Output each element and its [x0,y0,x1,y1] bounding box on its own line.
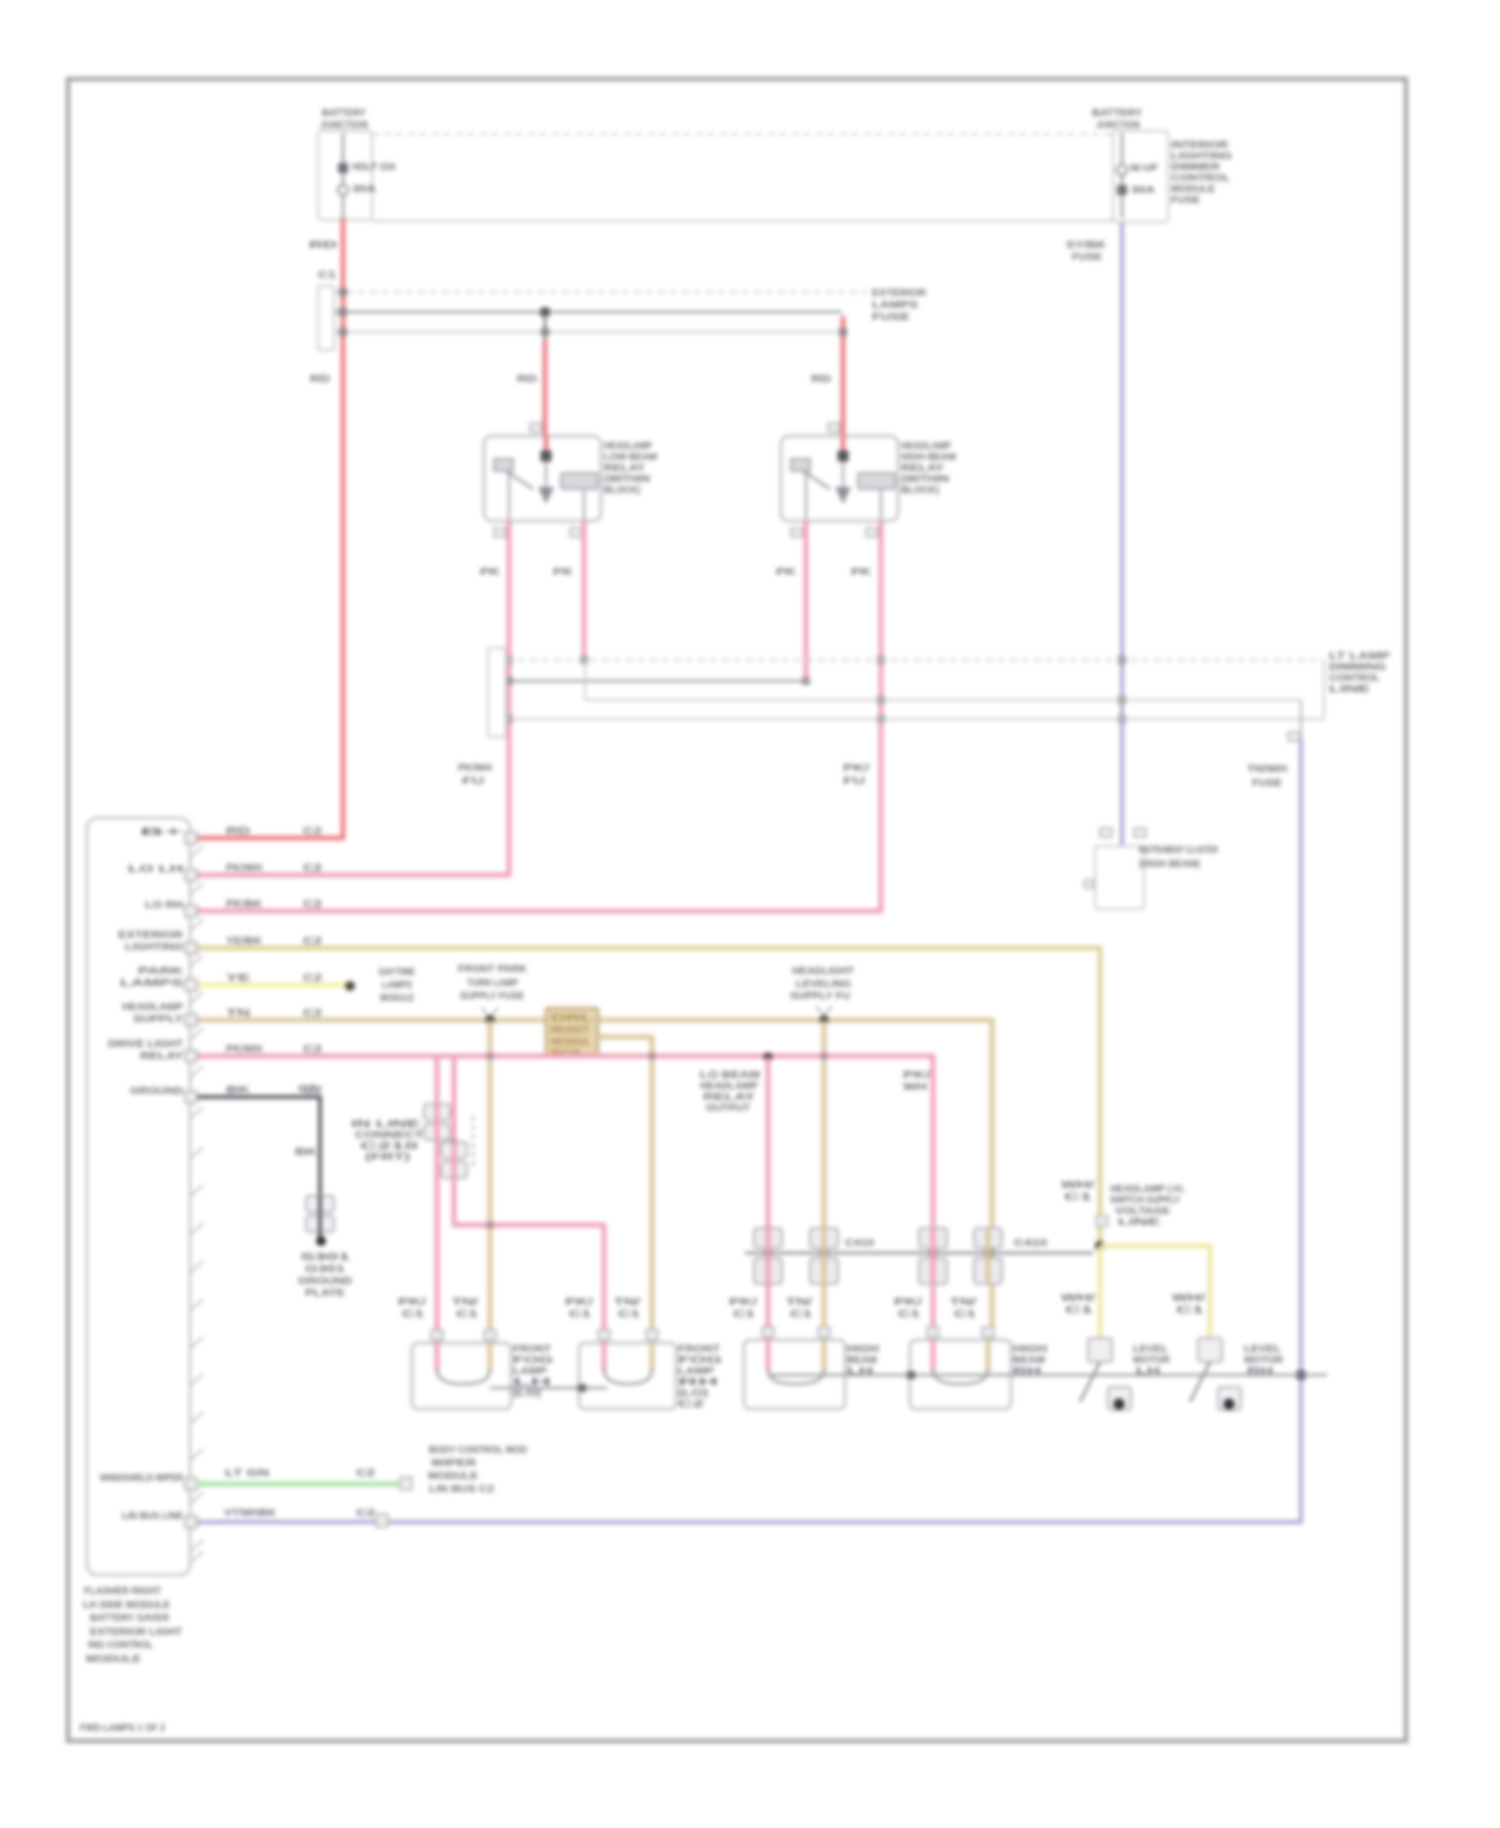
svg-text:HEADLAMP: HEADLAMP [604,441,652,452]
svg-text:BLOCK): BLOCK) [604,485,640,496]
svg-text:30A: 30A [352,184,376,195]
svg-text:BK: BK [295,1147,318,1158]
svg-text:G301: G301 [305,1264,346,1275]
svg-text:(FRT): (FRT) [365,1152,410,1163]
svg-text:C1: C1 [569,1309,592,1320]
svg-text:EXTERIOR LIGHT: EXTERIOR LIGHT [90,1627,182,1638]
svg-text:INSTRUMENT CLUSTER: INSTRUMENT CLUSTER [1139,845,1219,856]
svg-text:TN: TN [226,1008,250,1019]
svg-text:C1: C1 [733,1309,756,1320]
svg-text:PK: PK [851,567,872,578]
svg-text:W-UP: W-UP [1130,163,1158,174]
svg-text:HEADLAMP: HEADLAMP [122,1002,183,1013]
svg-text:C2: C2 [303,899,323,910]
svg-text:WH/: WH/ [1172,1293,1205,1304]
svg-text:LIGHTING: LIGHTING [125,942,183,953]
svg-text:RD: RD [517,374,537,385]
svg-text:MODUL: MODUL [551,1037,591,1048]
svg-text:JUNCTION: JUNCTION [320,120,368,131]
svg-text:EXTERIOR: EXTERIOR [118,930,184,941]
svg-text:RELAY: RELAY [140,1051,183,1062]
svg-text:C2: C2 [303,1044,323,1055]
svg-text:BODY CONTROL MOD: BODY CONTROL MOD [429,1445,527,1456]
svg-text:SUPPLY FU: SUPPLY FU [790,991,850,1002]
svg-text:C1: C1 [618,1309,641,1320]
svg-text:RELAY: RELAY [703,1092,756,1103]
svg-text:TN/: TN/ [786,1297,812,1308]
svg-text:C2: C2 [303,1085,323,1096]
svg-text:MODULE: MODULE [380,993,414,1004]
svg-text:INTERIOR: INTERIOR [1171,140,1229,151]
svg-text:SY/BK: SY/BK [1066,240,1107,251]
svg-text:C2: C2 [356,1468,376,1479]
svg-text:HIGH: HIGH [847,1344,879,1355]
svg-text:C410: C410 [845,1238,875,1249]
svg-text:(HIGH BEAM): (HIGH BEAM) [1139,859,1200,870]
svg-text:SUPPLY: SUPPLY [133,1014,183,1025]
svg-text:BEAM: BEAM [847,1355,877,1366]
svg-text:B+: B+ [140,827,184,838]
svg-text:LAMPS: LAMPS [872,300,918,311]
svg-text:FRONT PARK: FRONT PARK [458,964,528,975]
svg-text:CONNECT: CONNECT [355,1130,423,1141]
svg-text:FWD LAMPS 1 OF 2: FWD LAMPS 1 OF 2 [80,1723,165,1734]
svg-text:WH/: WH/ [1061,1293,1095,1304]
svg-text:PK/: PK/ [729,1297,757,1308]
svg-text:CONTROL: CONTROL [1329,673,1380,684]
svg-text:DIMMING: DIMMING [1329,662,1386,673]
svg-text:LEVEL: LEVEL [1244,1344,1281,1355]
svg-text:LH SIDE MODULE: LH SIDE MODULE [83,1600,170,1611]
svg-text:OUTPUT: OUTPUT [706,1103,750,1114]
svg-text:C1: C1 [790,1309,813,1320]
svg-text:PK/WH: PK/WH [458,763,492,774]
svg-text:C1: C1 [954,1309,977,1320]
svg-text:S301: S301 [300,1252,351,1263]
svg-text:PK/: PK/ [843,763,869,774]
svg-text:LH: LH [513,1377,551,1388]
svg-text:FU: FU [462,776,484,787]
svg-text:MODULE: MODULE [428,1471,478,1482]
svg-text:HEADLAMP: HEADLAMP [901,441,951,452]
svg-text:C1: C1 [1065,1305,1094,1316]
svg-text:C1: C1 [318,270,337,281]
svg-text:HDLP 15A: HDLP 15A [352,162,396,173]
svg-text:RESIST: RESIST [551,1025,589,1036]
svg-text:RH: RH [678,1377,718,1388]
svg-text:VOLTAGE: VOLTAGE [1115,1206,1170,1217]
svg-text:(WITHIN: (WITHIN [604,474,650,485]
svg-text:EXTERIOR: EXTERIOR [872,288,927,299]
svg-text:LIN BUS LINE: LIN BUS LINE [122,1511,183,1522]
svg-text:LAMPS: LAMPS [382,980,412,991]
svg-text:LAMP: LAMP [513,1366,547,1377]
svg-text:C2: C2 [303,973,323,984]
svg-text:TN/: TN/ [614,1297,640,1308]
svg-text:GROUND: GROUND [130,1086,183,1097]
svg-text:HIGH BEAM: HIGH BEAM [901,452,956,463]
svg-text:PK/WH: PK/WH [226,1044,262,1055]
svg-text:RD: RD [310,374,330,385]
svg-text:FOG: FOG [678,1355,722,1366]
svg-text:PK: PK [776,567,797,578]
svg-text:C2: C2 [303,826,323,837]
svg-text:C1: C1 [1064,1192,1093,1203]
svg-text:PK/: PK/ [398,1297,426,1308]
svg-text:RELAY: RELAY [604,463,645,474]
svg-text:RD: RD [226,826,250,837]
svg-text:BATTERY: BATTERY [322,108,366,119]
svg-text:PK/: PK/ [903,1070,930,1081]
svg-text:TN/WH: TN/WH [1247,764,1287,775]
svg-text:TURN LAMP: TURN LAMP [467,978,518,989]
svg-text:PK/: PK/ [894,1297,922,1308]
svg-text:FRONT: FRONT [513,1344,551,1355]
svg-text:PARK: PARK [138,966,184,977]
svg-text:SWITCH SUPPLY: SWITCH SUPPLY [1110,1195,1180,1206]
svg-text:PK: PK [480,567,501,578]
svg-text:FRONT: FRONT [678,1344,720,1355]
svg-text:DRIVE LIGHT: DRIVE LIGHT [108,1039,183,1050]
svg-text:LO BEAM: LO BEAM [700,1070,760,1081]
svg-text:YE: YE [226,973,251,984]
svg-text:MOTOR: MOTOR [1244,1355,1284,1366]
svg-text:WINDSHIELD WIPER: WINDSHIELD WIPER [100,1473,184,1484]
svg-text:MOTOR: MOTOR [1133,1355,1171,1366]
svg-text:LT GN: LT GN [225,1468,269,1479]
svg-text:WH/: WH/ [1061,1180,1094,1191]
svg-text:LIN BUS C2: LIN BUS C2 [429,1484,495,1495]
svg-text:FUSE: FUSE [1252,778,1282,789]
svg-text:C2: C2 [303,936,323,947]
svg-text:LOW BEAM: LOW BEAM [604,452,657,463]
svg-text:DAYTIME: DAYTIME [379,967,415,978]
svg-text:WH: WH [903,1082,927,1093]
svg-text:FUSE: FUSE [1171,195,1200,206]
svg-text:BEAM: BEAM [1013,1355,1045,1366]
svg-text:LINE: LINE [1329,684,1371,695]
svg-text:HEADLIGHT: HEADLIGHT [792,966,854,977]
svg-text:WIPER: WIPER [431,1458,477,1469]
svg-text:C2: C2 [356,1508,376,1519]
svg-text:(LO): (LO) [513,1388,541,1399]
svg-text:LAMPS: LAMPS [120,978,184,989]
svg-text:VT/WHBK: VT/WHBK [224,1508,277,1519]
svg-text:C1: C1 [402,1309,425,1320]
svg-text:DIMMER: DIMMER [1171,162,1221,173]
svg-text:BLOCK): BLOCK) [901,485,939,496]
svg-text:BATTERY: BATTERY [1092,108,1142,119]
svg-text:(WITHIN: (WITHIN [901,474,949,485]
svg-text:C410: C410 [1014,1238,1048,1249]
svg-text:LO RH: LO RH [145,900,183,911]
svg-text:SUPPLY FUSE: SUPPLY FUSE [460,991,524,1002]
svg-text:C2: C2 [303,1008,323,1019]
svg-text:(LO): (LO) [678,1388,708,1399]
svg-text:ING CONTROL: ING CONTROL [88,1640,153,1651]
svg-text:RH: RH [1247,1366,1273,1377]
svg-text:YE/BK: YE/BK [226,936,263,947]
svg-text:PK/BK: PK/BK [226,899,263,910]
svg-text:PK: PK [553,567,574,578]
svg-text:HEADLAMP LVL: HEADLAMP LVL [1110,1184,1185,1195]
svg-text:MODULE: MODULE [86,1654,141,1665]
svg-text:FLASHER RIGHT: FLASHER RIGHT [84,1586,161,1597]
svg-text:PK/WH: PK/WH [226,863,262,874]
svg-text:LINE: LINE [1118,1217,1161,1228]
svg-text:C1: C1 [1176,1305,1205,1316]
svg-text:LEVELING: LEVELING [796,979,851,990]
svg-text:LAMP: LAMP [678,1366,714,1377]
svg-text:LIGHTING: LIGHTING [1171,151,1232,162]
svg-text:RELAY: RELAY [901,463,944,474]
svg-text:LT LAMP: LT LAMP [1329,651,1390,662]
svg-text:C2: C2 [303,863,323,874]
svg-text:C1: C1 [456,1309,479,1320]
svg-text:FU: FU [843,776,865,787]
svg-text:IN LINE: IN LINE [351,1119,421,1130]
svg-text:LEVEL: LEVEL [1133,1344,1168,1355]
svg-text:JUNCTION: JUNCTION [1096,120,1140,131]
svg-text:MODULE: MODULE [1171,184,1215,195]
svg-text:BATTERY SAVER: BATTERY SAVER [90,1613,170,1624]
svg-text:GROUND: GROUND [298,1276,352,1287]
svg-text:BK: BK [226,1085,251,1096]
svg-text:C1: C1 [898,1309,921,1320]
svg-text:PK/: PK/ [565,1297,593,1308]
svg-text:FUSE: FUSE [872,312,910,323]
svg-text:HEADLAMP: HEADLAMP [700,1081,758,1092]
svg-text:LH: LH [1136,1366,1160,1377]
svg-text:CONTROL: CONTROL [1171,173,1230,184]
svg-text:FUSE: FUSE [1072,252,1102,263]
svg-text:HIGH: HIGH [1013,1344,1047,1355]
svg-text:30A: 30A [1131,185,1155,196]
svg-text:C2: C2 [678,1399,705,1410]
svg-text:RD: RD [309,240,337,251]
svg-text:TN/: TN/ [950,1297,976,1308]
svg-text:TN/: TN/ [452,1297,478,1308]
svg-text:PLATE: PLATE [305,1288,345,1299]
svg-text:C210: C210 [360,1141,419,1152]
svg-text:FOG: FOG [513,1355,553,1366]
svg-text:DRL: DRL [551,1013,593,1024]
svg-text:LO LH: LO LH [128,864,183,875]
svg-text:RD: RD [811,374,831,385]
